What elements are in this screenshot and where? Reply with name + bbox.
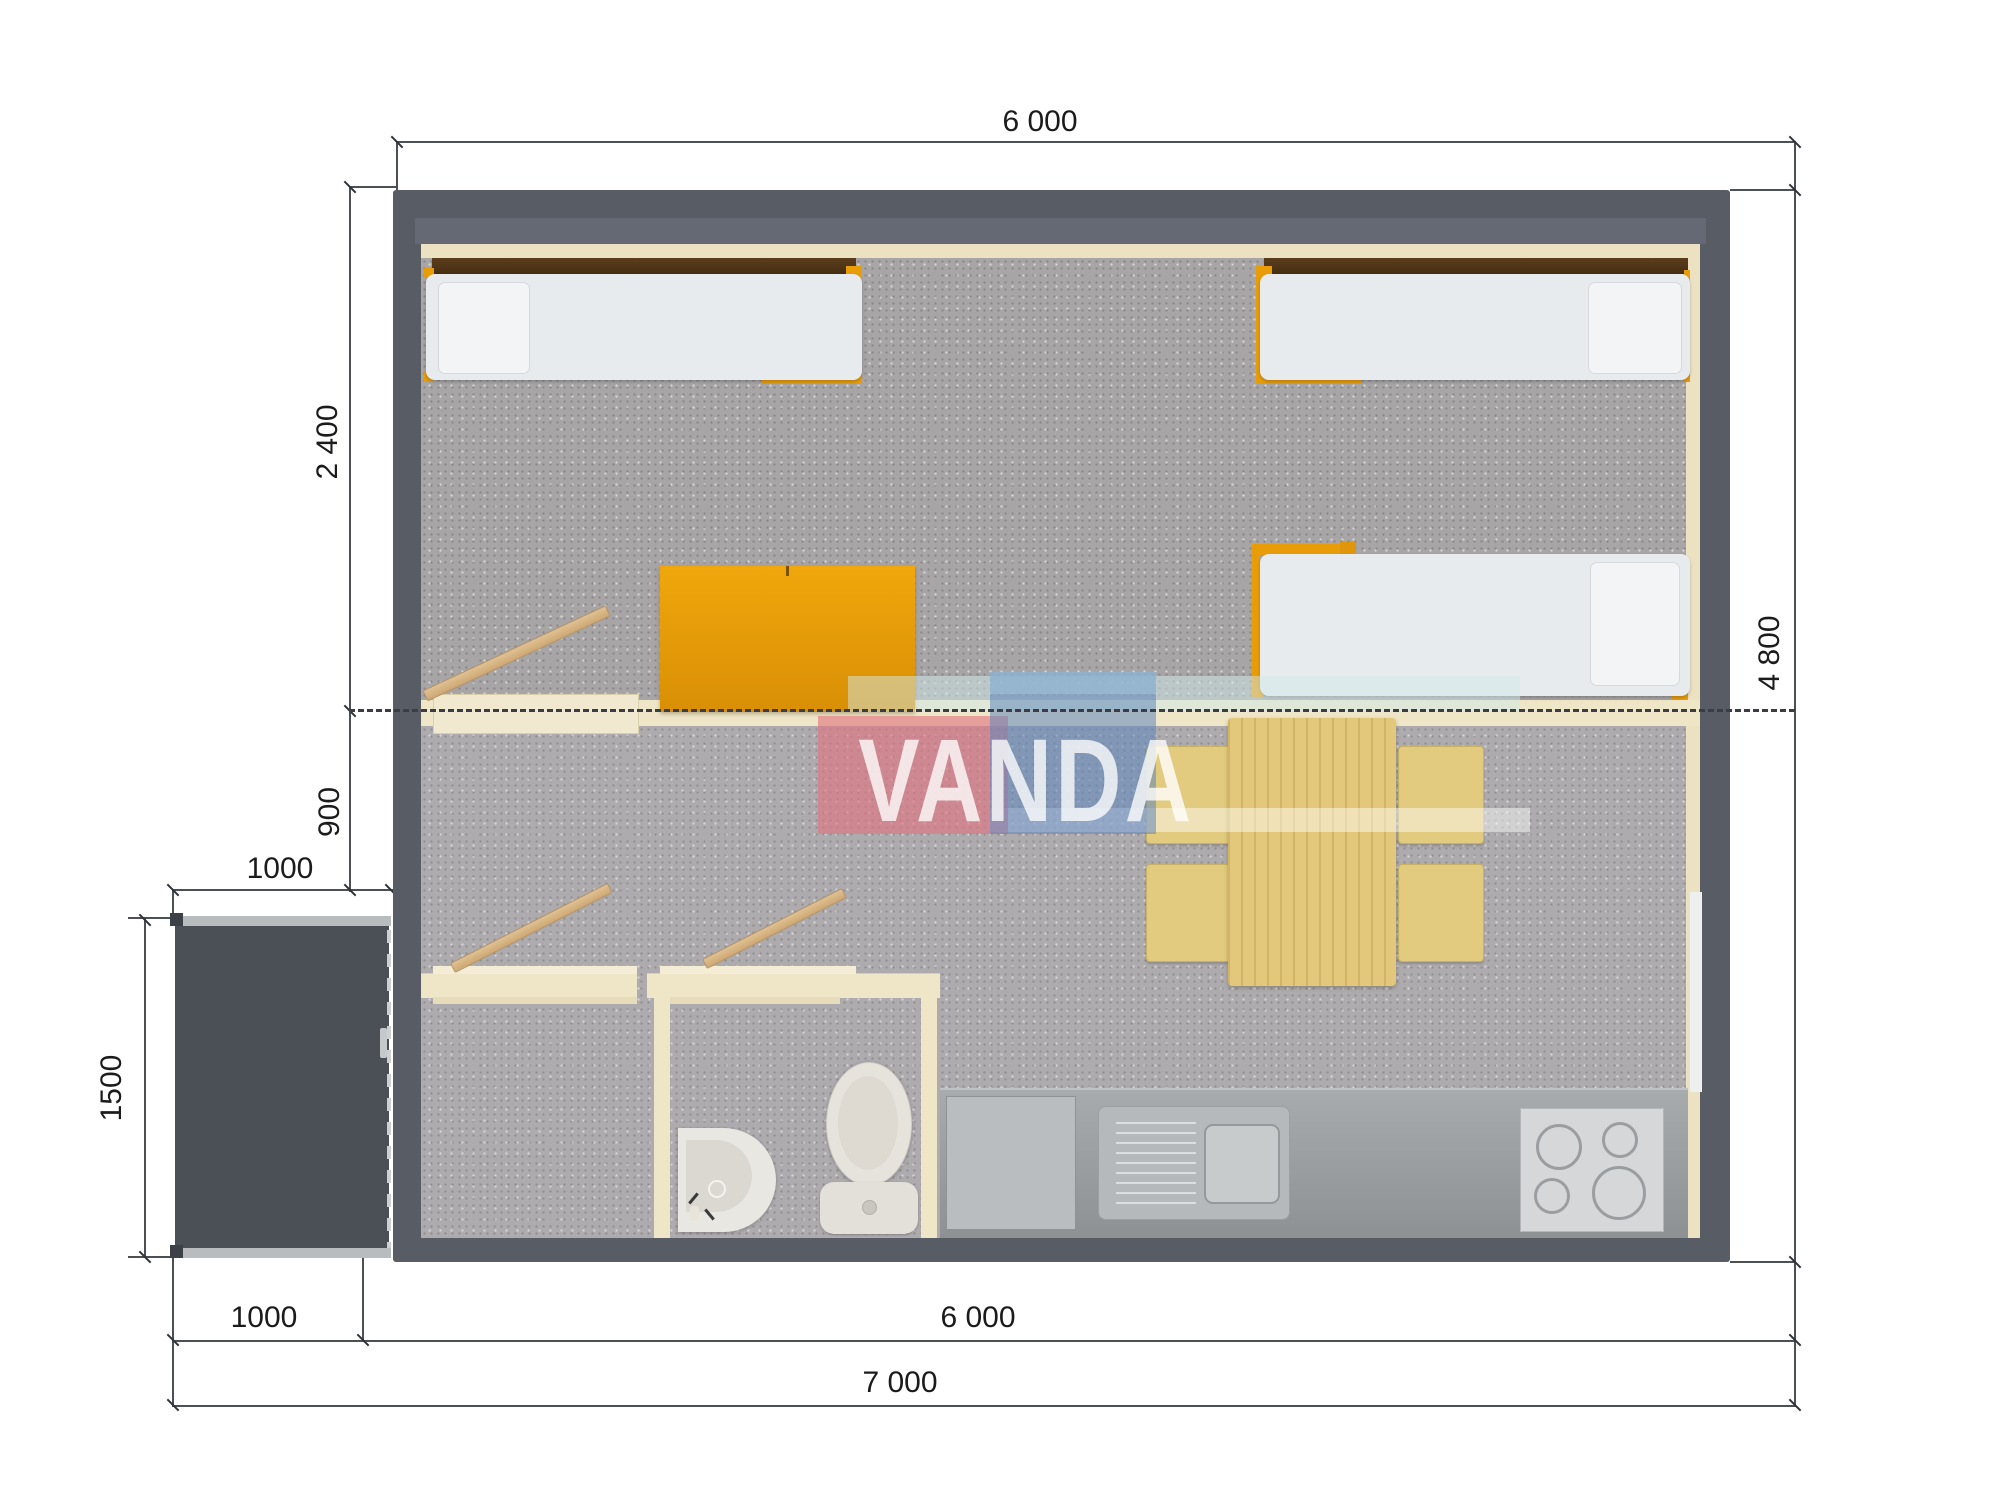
stove-burner bbox=[1534, 1178, 1570, 1214]
stove-burner bbox=[1592, 1166, 1646, 1220]
partition-centerline bbox=[349, 709, 1795, 712]
dim-label-porch-width: 1000 bbox=[180, 853, 380, 885]
toilet-lid-inner bbox=[838, 1076, 898, 1170]
window bbox=[1690, 892, 1702, 1092]
bed-pillow bbox=[438, 282, 530, 374]
kitchen-cabinet bbox=[946, 1096, 1076, 1230]
soap-bottle bbox=[690, 1206, 699, 1221]
porch-post bbox=[170, 913, 183, 926]
dim-label-bedroom-depth: 2 400 bbox=[312, 342, 344, 542]
bathroom-wall-cap bbox=[433, 997, 637, 1004]
dim-ext-porch-left-top bbox=[128, 917, 176, 919]
dining-chair bbox=[1398, 864, 1484, 962]
bathroom-wall bbox=[421, 973, 637, 998]
bathroom-wall-cap bbox=[660, 966, 856, 974]
dim-label-top-width: 6 000 bbox=[940, 106, 1140, 138]
dim-ext-top-left bbox=[396, 141, 398, 191]
dim-label-bottom-porch: 1000 bbox=[164, 1302, 364, 1334]
dim-line-top bbox=[396, 141, 1796, 143]
dim-label-bottom-total: 7 000 bbox=[800, 1367, 1000, 1399]
entry-door-handle bbox=[380, 1028, 387, 1058]
dining-table bbox=[1228, 718, 1396, 986]
dim-label-porch-depth: 1500 bbox=[96, 988, 128, 1188]
dim-ext-corner bbox=[349, 186, 397, 188]
top-wall-step bbox=[415, 218, 1706, 244]
sink-drainboard bbox=[1116, 1122, 1196, 1206]
dim-line-porch-top bbox=[172, 889, 393, 891]
stove-burner bbox=[1536, 1124, 1582, 1170]
partition-wall-segment bbox=[433, 694, 639, 734]
watermark-band bbox=[848, 676, 1520, 712]
bathroom-partition bbox=[921, 997, 937, 1238]
dim-ext-right-bottom bbox=[1730, 1261, 1796, 1263]
porch-deck bbox=[175, 926, 389, 1248]
lining-top bbox=[421, 244, 1700, 258]
bed-footboard bbox=[1252, 544, 1260, 698]
bed-headboard bbox=[1264, 258, 1688, 274]
dim-label-right-height: 4 800 bbox=[1754, 553, 1786, 753]
dining-chair bbox=[1146, 864, 1232, 962]
dim-line-bottom-1 bbox=[172, 1340, 1796, 1342]
bed-headboard bbox=[432, 258, 856, 274]
watermark-logo: VANDA bbox=[858, 722, 1115, 840]
bed-pillow bbox=[1590, 562, 1680, 686]
dim-label-bottom-house: 6 000 bbox=[878, 1302, 1078, 1334]
toilet-flush-button bbox=[862, 1200, 877, 1215]
bathroom-partition bbox=[654, 997, 670, 1238]
dim-line-bottom-2 bbox=[172, 1405, 1796, 1407]
stove-burner bbox=[1602, 1122, 1638, 1158]
washbasin-faucet bbox=[708, 1180, 726, 1198]
dim-ext-right-top bbox=[1730, 189, 1796, 191]
bathroom-wall-cap bbox=[660, 997, 840, 1004]
dim-line-left-chain bbox=[349, 186, 351, 892]
dim-line-porch-left bbox=[144, 918, 146, 1258]
entry-door-dashed bbox=[387, 930, 391, 1248]
porch-top-step bbox=[173, 916, 391, 926]
bed-pillow bbox=[1588, 282, 1682, 374]
dim-ext-porch-left-bottom bbox=[128, 1256, 176, 1258]
watermark-blue-top bbox=[990, 672, 1156, 694]
dim-line-right bbox=[1794, 141, 1796, 1407]
stove bbox=[1520, 1108, 1664, 1232]
bathroom-wall bbox=[647, 973, 940, 998]
porch-bottom-step bbox=[173, 1248, 391, 1258]
sink-basin bbox=[1204, 1124, 1280, 1204]
floor-plan: 6 000 4 800 2 400 900 1000 1500 1000 6 0… bbox=[0, 0, 2000, 1502]
wardrobe-handle bbox=[786, 566, 789, 576]
porch-post bbox=[170, 1245, 183, 1258]
